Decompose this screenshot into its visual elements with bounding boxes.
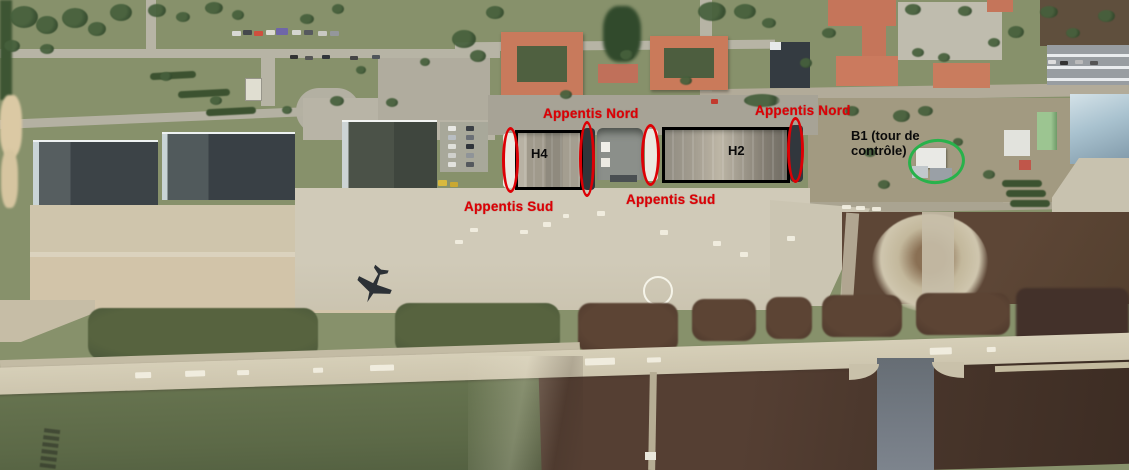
parked-car xyxy=(290,55,298,59)
tree xyxy=(762,18,776,28)
tree xyxy=(210,96,222,105)
courtyard-1 xyxy=(517,46,567,82)
road-top-horizontal xyxy=(0,49,500,58)
tree xyxy=(176,12,190,22)
tree xyxy=(452,30,476,48)
tree xyxy=(698,2,726,21)
tree xyxy=(680,76,692,85)
helipad-circle xyxy=(643,276,673,306)
tree xyxy=(958,6,972,16)
mid-building-skylight xyxy=(601,158,610,167)
parked-car xyxy=(254,31,263,36)
parked-car xyxy=(243,30,252,35)
small-building xyxy=(245,78,262,101)
tree xyxy=(88,22,106,36)
apron-marking xyxy=(787,236,795,241)
hangar-roof-3 xyxy=(342,120,437,190)
runway-marking xyxy=(370,364,394,371)
courtyard-2 xyxy=(664,48,714,78)
seam-shadow xyxy=(468,356,583,470)
satellite-map: Appentis Nord Appentis Nord Appentis Sud… xyxy=(0,0,1129,470)
building-gray-striped xyxy=(1047,45,1129,85)
hedge-row xyxy=(178,89,230,99)
tree xyxy=(282,106,292,114)
hedge-right xyxy=(1006,190,1046,197)
blast-pad xyxy=(692,299,756,341)
parked-car xyxy=(330,31,339,36)
parked-car xyxy=(292,30,301,35)
tree xyxy=(912,48,924,57)
parked-car xyxy=(1060,61,1068,65)
blast-pad xyxy=(578,303,678,353)
appentis-ellipse-4 xyxy=(787,117,804,183)
parked-car xyxy=(305,56,313,60)
apron-marking xyxy=(660,230,668,235)
building-red-T-c xyxy=(836,56,898,86)
parked-car xyxy=(232,31,241,36)
apron-marking xyxy=(713,241,721,246)
building-white-right xyxy=(1004,130,1030,156)
parked-car xyxy=(448,162,456,167)
label-appentis-nord-2: Appentis Nord xyxy=(755,103,851,118)
tree xyxy=(893,110,910,122)
tree xyxy=(1008,26,1024,38)
tree xyxy=(300,14,314,24)
label-h2: H2 xyxy=(728,143,745,158)
tree xyxy=(205,2,223,14)
building-red-right xyxy=(933,63,990,88)
tree xyxy=(1098,10,1115,22)
mid-building-roof xyxy=(597,128,643,180)
apron-wedge-left xyxy=(0,300,95,342)
building-red-small xyxy=(598,64,638,83)
tree xyxy=(734,4,756,19)
mid-building-skylight xyxy=(601,142,610,152)
tree xyxy=(878,180,890,189)
parked-car xyxy=(448,144,456,149)
parked-car xyxy=(448,126,456,131)
building-red-white-small xyxy=(1019,160,1031,170)
parked-car xyxy=(448,153,456,158)
hangar-roof-2 xyxy=(162,132,295,200)
parked-van xyxy=(276,28,288,35)
parked-car xyxy=(266,30,275,35)
parked-car xyxy=(350,56,358,60)
road-vertical-loop xyxy=(261,50,275,106)
tree xyxy=(160,72,172,81)
parked-car xyxy=(1075,60,1083,64)
service-road-shed xyxy=(645,452,656,460)
parked-car xyxy=(466,153,474,158)
parked-car xyxy=(466,135,474,140)
service-vehicle xyxy=(450,182,458,187)
runway-marking xyxy=(135,372,151,378)
hedge-right xyxy=(1010,200,1050,207)
blast-pad xyxy=(916,293,1010,335)
appentis-ellipse-3 xyxy=(641,124,660,186)
parked-car xyxy=(466,162,474,167)
tree xyxy=(62,8,88,28)
tree xyxy=(822,28,836,38)
parked-car xyxy=(1090,61,1098,65)
tree xyxy=(36,16,58,34)
parked-car xyxy=(1048,60,1056,64)
appentis-ellipse-2 xyxy=(579,121,595,197)
tree xyxy=(232,10,244,20)
parked-car xyxy=(448,135,456,140)
apron-marking xyxy=(842,205,851,209)
apron-marking xyxy=(563,214,569,218)
tree xyxy=(356,66,366,74)
tree xyxy=(918,106,933,116)
runway-marking xyxy=(237,370,249,375)
parked-car xyxy=(466,144,474,149)
hedge-row xyxy=(150,71,196,80)
tree xyxy=(40,44,54,54)
tree xyxy=(1066,28,1080,38)
hangar-blue xyxy=(1070,94,1129,164)
appentis-ellipse-1 xyxy=(502,127,519,193)
tree xyxy=(10,6,38,28)
tree xyxy=(983,170,995,179)
tree xyxy=(470,50,486,62)
label-appentis-sud-2: Appentis Sud xyxy=(626,192,715,207)
parked-car xyxy=(372,55,380,59)
apron-marking xyxy=(740,252,748,257)
tree xyxy=(988,38,1000,47)
apron-marking xyxy=(856,206,865,210)
tree xyxy=(332,4,344,14)
tree xyxy=(938,53,950,62)
parked-car xyxy=(304,30,313,35)
label-b1-line1: B1 (tour de xyxy=(851,128,920,143)
hangar-roof-1 xyxy=(33,140,158,208)
sand-patch xyxy=(1,150,18,208)
apron-marking xyxy=(543,222,551,227)
parked-car xyxy=(466,126,474,131)
tree xyxy=(800,58,812,68)
blast-pad xyxy=(766,297,812,339)
apron-marking xyxy=(470,228,478,232)
mid-building-bar xyxy=(610,175,637,182)
building-red-top xyxy=(987,0,1013,12)
tree xyxy=(486,6,504,19)
tree xyxy=(148,4,166,17)
tree xyxy=(386,98,398,107)
label-appentis-nord-1: Appentis Nord xyxy=(543,106,639,121)
label-appentis-sud-1: Appentis Sud xyxy=(464,199,553,214)
service-vehicle xyxy=(438,180,447,186)
hangar-h2-outline xyxy=(662,127,790,183)
tree xyxy=(420,58,430,66)
blast-pad xyxy=(822,295,902,337)
runway-marking xyxy=(585,358,615,366)
tree xyxy=(620,50,634,60)
tree xyxy=(560,90,572,99)
runway-marking xyxy=(930,347,952,355)
hangar-h4-outline xyxy=(515,130,583,190)
tree xyxy=(1040,6,1058,18)
runway-marking xyxy=(313,368,323,373)
label-h4: H4 xyxy=(531,146,548,161)
parking-lot xyxy=(378,58,490,120)
red-vehicle xyxy=(711,99,718,104)
parked-car xyxy=(322,55,330,59)
label-b1-line2: contrôle) xyxy=(851,143,907,158)
building-dark-corner xyxy=(770,42,781,50)
runway-marking xyxy=(647,357,661,362)
tree xyxy=(4,40,20,52)
taxiway-vertical xyxy=(877,358,934,470)
tree xyxy=(905,4,921,15)
hedge-right xyxy=(1002,180,1042,187)
runway-marking xyxy=(185,370,205,377)
building-green xyxy=(1037,112,1057,150)
sand-patch xyxy=(0,95,22,157)
apron-marking xyxy=(872,207,881,211)
apron-marking xyxy=(455,240,463,244)
tree xyxy=(110,4,132,21)
parked-car xyxy=(318,31,327,36)
tree xyxy=(330,96,344,106)
apron-marking xyxy=(597,211,605,216)
apron-marking xyxy=(520,230,528,234)
runway-marking xyxy=(987,347,996,352)
